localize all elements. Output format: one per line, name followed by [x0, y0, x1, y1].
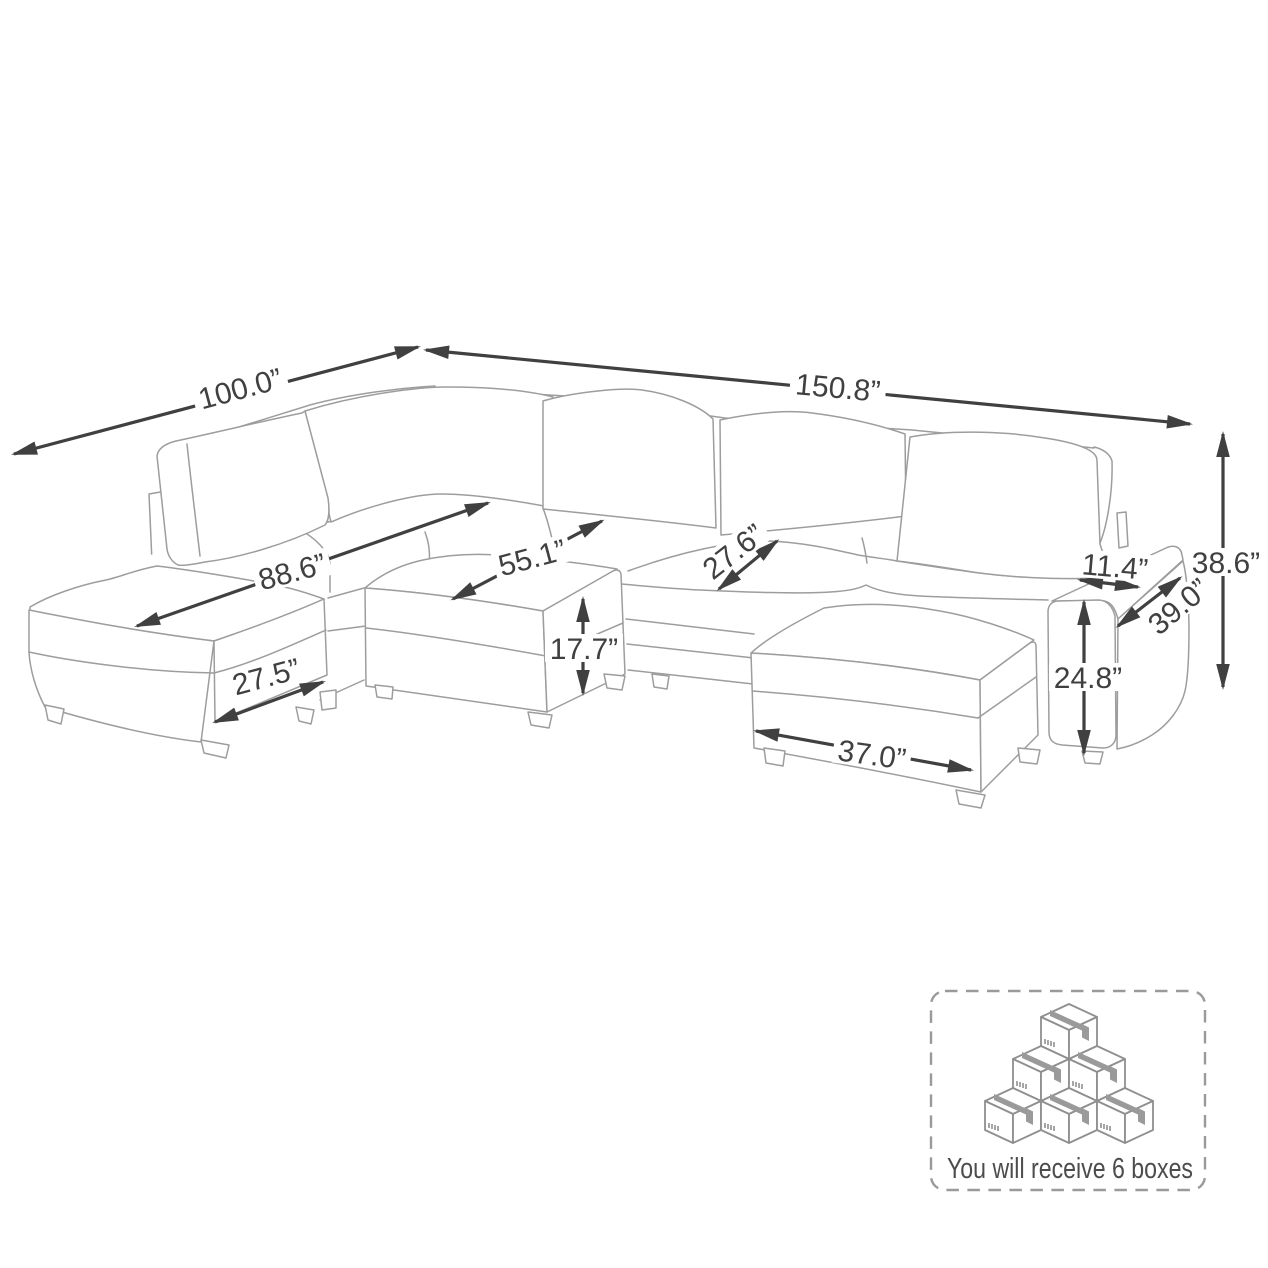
svg-text:17.7”: 17.7”	[550, 633, 618, 666]
svg-text:You will receive 6 boxes: You will receive 6 boxes	[947, 1153, 1193, 1185]
svg-text:38.6”: 38.6”	[1192, 547, 1260, 580]
svg-text:24.8”: 24.8”	[1054, 662, 1122, 695]
svg-text:150.8”: 150.8”	[794, 368, 882, 409]
svg-text:100.0”: 100.0”	[195, 363, 286, 417]
svg-text:11.4”: 11.4”	[1080, 548, 1149, 587]
